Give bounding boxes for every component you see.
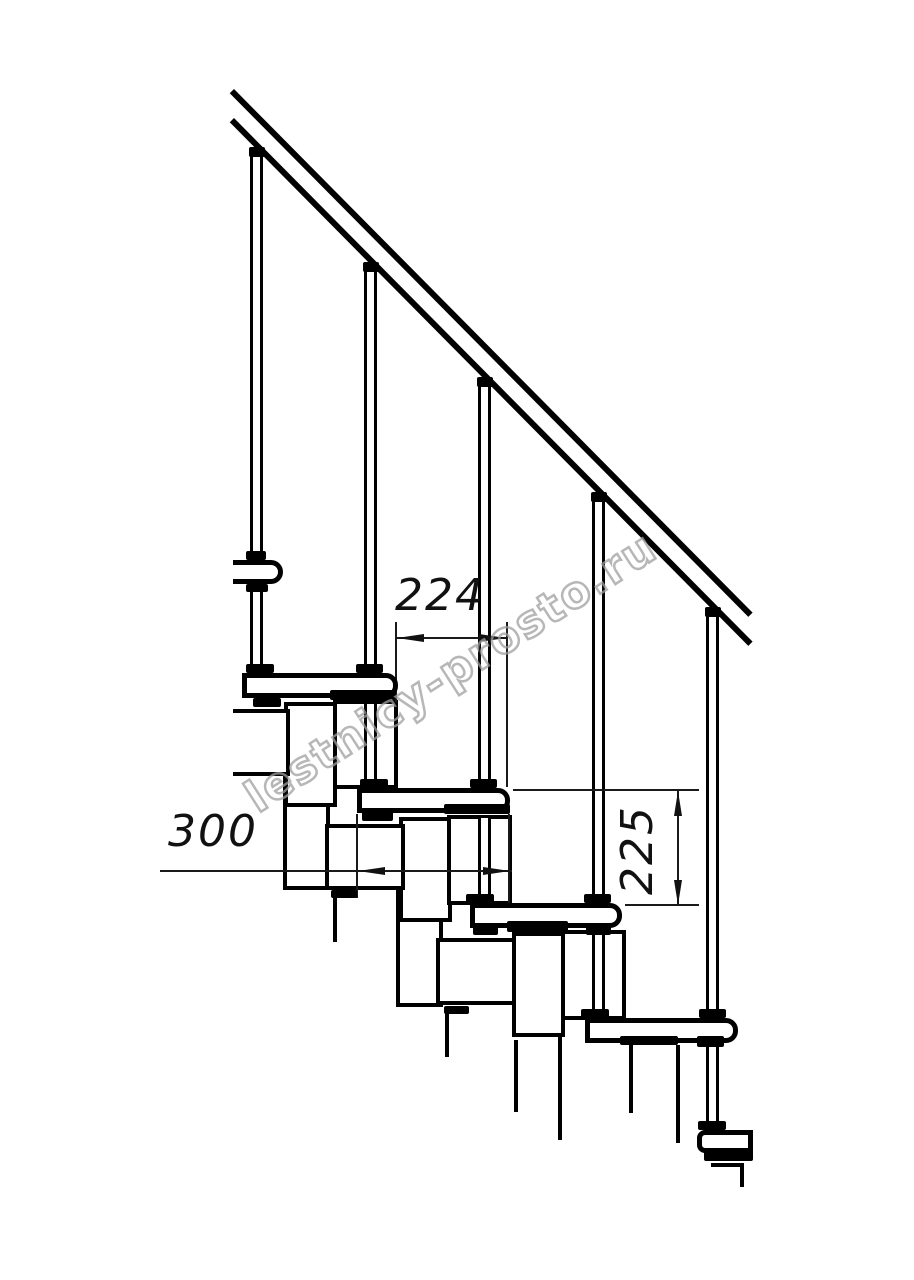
module-block xyxy=(325,824,405,890)
arrowhead-right-icon xyxy=(483,867,510,875)
arrowhead-down-icon xyxy=(674,880,682,905)
module-plate xyxy=(620,1036,678,1045)
baluster-collar xyxy=(581,1009,609,1018)
module-plate xyxy=(444,804,510,814)
rail-connector xyxy=(363,262,379,272)
baluster-collar xyxy=(246,664,274,673)
module-plate xyxy=(704,1151,753,1161)
module-block xyxy=(436,938,516,1005)
module-block xyxy=(512,932,565,1037)
baluster-collar xyxy=(697,1036,724,1047)
baluster-rod xyxy=(250,156,263,562)
baluster-collar xyxy=(470,779,497,788)
tread-6 xyxy=(697,1130,753,1153)
cut-line xyxy=(629,1045,633,1113)
staircase-technical-drawing: 224 300 225 xyxy=(0,0,914,1280)
baluster-collar xyxy=(698,1121,726,1130)
baluster-rod xyxy=(706,616,719,1018)
cut-line xyxy=(558,1037,562,1140)
module-foot xyxy=(331,890,357,898)
baluster-collar xyxy=(356,664,383,673)
rail-connector xyxy=(477,377,493,387)
handrail-upper-line xyxy=(230,89,753,617)
cut-line xyxy=(445,1012,449,1057)
cut-line xyxy=(514,1040,518,1112)
dimension-line-300 xyxy=(160,870,512,872)
arrowhead-up-icon xyxy=(674,791,682,816)
dimension-riser-label: 225 xyxy=(616,794,660,906)
extension-line xyxy=(508,814,510,905)
extension-line xyxy=(513,789,699,791)
module-foot xyxy=(444,1006,469,1014)
cut-line xyxy=(333,897,337,942)
baluster-collar xyxy=(246,584,268,592)
rail-connector xyxy=(591,492,607,502)
baluster-rod xyxy=(478,818,491,903)
module-foot xyxy=(362,811,393,821)
baluster-rod xyxy=(250,584,263,673)
baluster-rod xyxy=(592,932,605,1018)
module-foot xyxy=(253,698,281,707)
arrowhead-left-icon xyxy=(397,634,424,642)
rail-connector xyxy=(249,147,265,157)
baluster-collar xyxy=(586,926,611,935)
baluster-rod xyxy=(364,271,377,673)
cut-line xyxy=(676,1045,680,1143)
baluster-collar xyxy=(584,894,611,903)
baluster-collar xyxy=(466,894,494,903)
arrowhead-left-icon xyxy=(358,867,385,875)
module-plate xyxy=(507,921,568,932)
rail-connector xyxy=(705,607,721,617)
dimension-run-label: 224 xyxy=(385,574,495,618)
baluster-collar xyxy=(246,551,266,560)
extension-line xyxy=(356,814,358,898)
baluster-collar xyxy=(360,779,388,788)
dimension-depth-label: 300 xyxy=(160,810,266,854)
module-foot xyxy=(473,926,498,935)
cut-line xyxy=(740,1163,744,1187)
baluster-collar xyxy=(699,1009,726,1018)
tread-1 xyxy=(233,560,283,584)
baluster-rod xyxy=(706,1047,719,1130)
